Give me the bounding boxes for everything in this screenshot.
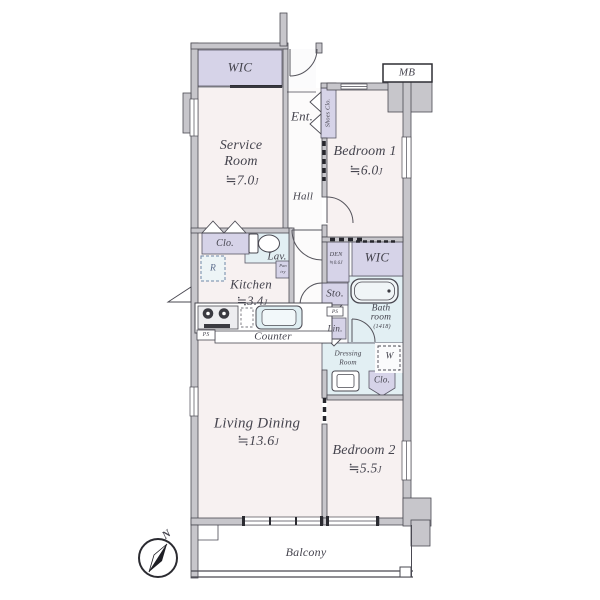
bathroom-label-2: room [371,313,392,323]
closet2-label: Clo. [374,376,390,385]
dressing-label-2: Room [339,359,356,366]
living-dining-size: ≒13.6J [237,435,279,449]
balcony-label: Balcony [286,546,327,558]
bedroom1-label: Bedroom 1 [333,145,396,159]
service-room-label-1: Service [220,139,263,153]
pantry-label-1: Pan [279,264,287,269]
wall-left-balcony [191,525,198,578]
balcony-step [198,525,218,540]
closet1-label: Clo. [216,239,234,249]
bedroom2-floor [327,398,403,518]
wic-top-doors [230,85,282,88]
service-room-size: ≒7.0J [225,173,258,187]
pantry-label-2: try [280,270,285,275]
wall-top-stub [280,13,287,46]
toilet-tank-icon [249,234,258,253]
service-room-label-2: Room [224,155,257,169]
washer-label: W [385,352,393,362]
shoes-closet-label: Shoes Clo. [325,99,331,127]
wall-bedroom2-top [327,395,403,400]
vent-mark [168,287,191,302]
bathroom-size: (1418) [373,324,390,330]
floor-plan-drawing [0,0,600,600]
balcony-drain-box [400,567,411,577]
ps2-label: PS [332,309,338,315]
den-size: ≒0.6J [329,261,342,266]
hall-label: Hall [293,192,313,203]
bedroom1-size: ≒6.0J [349,163,382,177]
fridge-label: R [210,264,216,274]
entrance-floor [287,49,316,88]
living-dining-label: Living Dining [214,417,300,432]
toilet-bowl-icon [259,235,280,252]
compass-icon [139,539,177,577]
bedroom2-label: Bedroom 2 [332,444,395,458]
ps1-label: PS [203,332,210,338]
wall-column-c [322,370,327,398]
corridor-floor [294,230,322,305]
floor-plan-page: WIC MB Ent. Shoes Clo. Service Room ≒7.0… [0,0,600,600]
wall-top [191,43,288,49]
wic-top-label: WIC [228,61,252,74]
bathtub-drain-icon [387,289,390,292]
mb-label: MB [399,68,415,79]
wall-column-a [322,242,327,283]
storage-label: Sto. [326,289,344,300]
linen-label: Lin. [327,325,342,334]
wic2-label: WIC [365,251,389,264]
bathtub-icon [351,279,398,303]
wall-bedroom1-left-b [322,225,327,237]
grill-icon [204,324,230,328]
wall-balcony-right [411,520,430,546]
entrance-label: Ent. [291,110,313,123]
den-label: DEN [330,252,343,258]
wall-service-hall [283,49,288,230]
kitchen-size: ≒3.4J [237,295,268,308]
wall-ld-bedroom2 [322,424,327,518]
lavatory-label: Lav. [267,252,286,263]
counter-label: Counter [254,332,291,343]
dressing-label-1: Dressing [335,350,362,357]
washbasin-icon [332,371,359,391]
kitchen-label: Kitchen [230,278,272,291]
wall-bedroom1-left-a [322,138,327,197]
bedroom2-size: ≒5.5J [348,461,381,475]
